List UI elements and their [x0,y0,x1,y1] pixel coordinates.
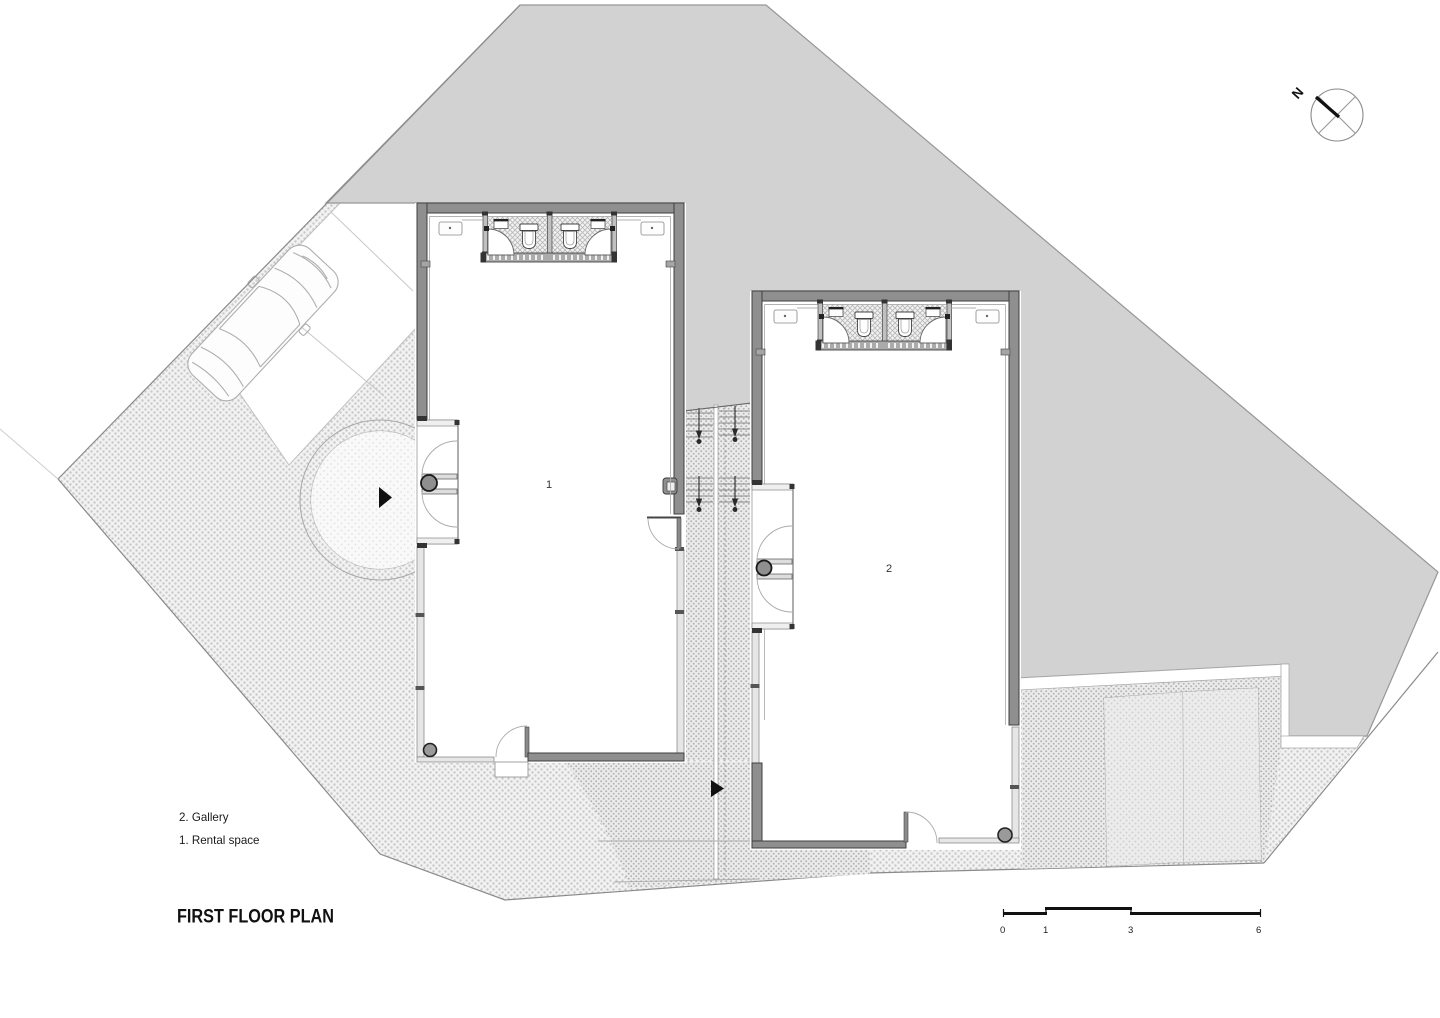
svg-text:1. Rental space: 1. Rental space [179,833,260,847]
svg-text:N: N [1289,85,1307,102]
svg-text:1: 1 [546,479,552,491]
svg-text:2. Gallery: 2. Gallery [179,810,229,824]
svg-text:FIRST FLOOR PLAN: FIRST FLOOR PLAN [177,906,334,928]
svg-text:3: 3 [1128,925,1133,936]
svg-text:6: 6 [1256,925,1261,936]
svg-text:0: 0 [1000,925,1005,936]
svg-text:2: 2 [886,563,892,575]
svg-text:1: 1 [1043,925,1048,936]
